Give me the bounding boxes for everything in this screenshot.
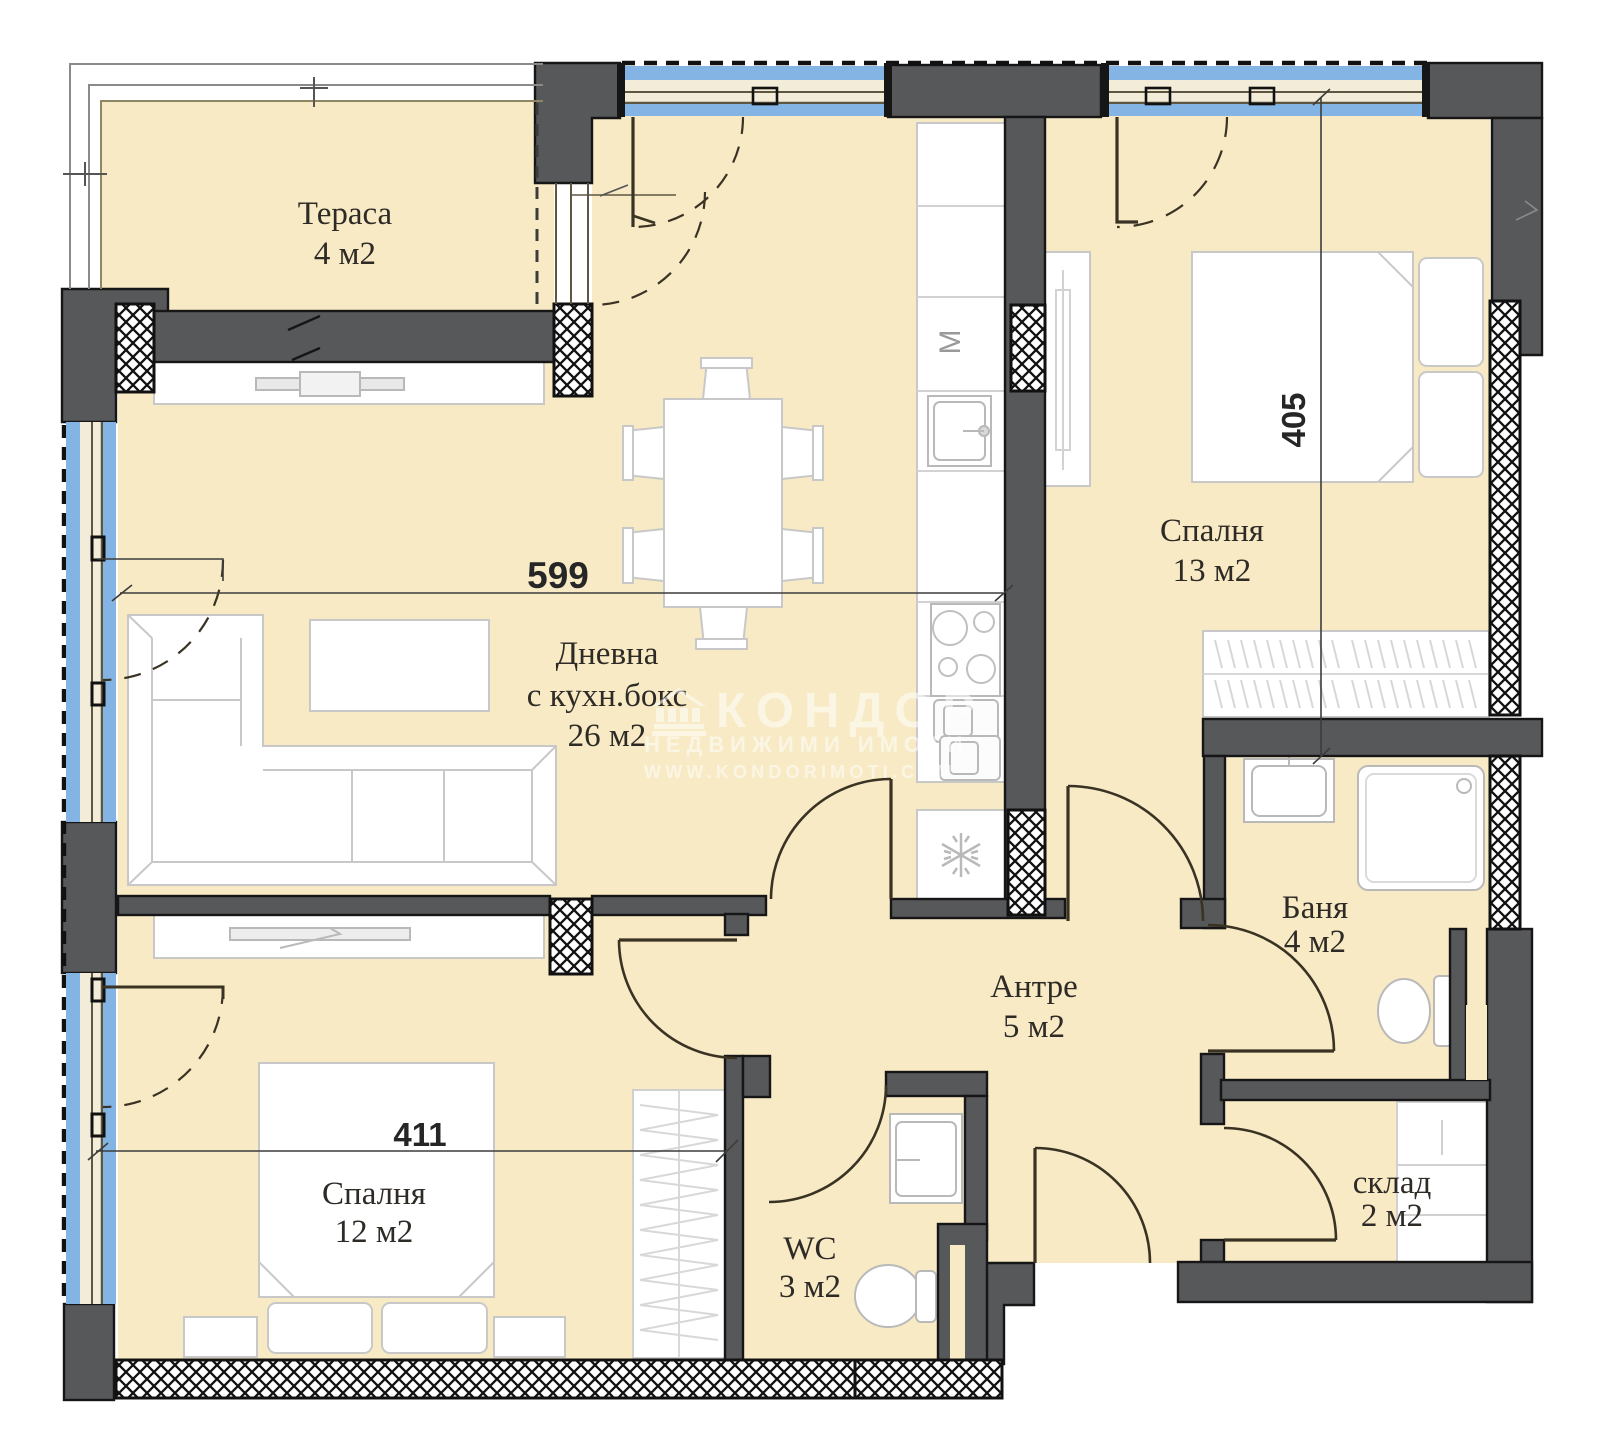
svg-text:Дневна: Дневна bbox=[556, 636, 659, 672]
svg-text:26 м2: 26 м2 bbox=[568, 718, 647, 754]
svg-text:5 м2: 5 м2 bbox=[1003, 1009, 1065, 1045]
svg-text:2 м2: 2 м2 bbox=[1361, 1198, 1423, 1234]
svg-text:12 м2: 12 м2 bbox=[335, 1214, 414, 1250]
svg-text:3 м2: 3 м2 bbox=[779, 1269, 841, 1305]
svg-text:Баня: Баня bbox=[1282, 890, 1348, 926]
svg-text:13 м2: 13 м2 bbox=[1173, 553, 1252, 589]
svg-text:НЕДВИЖИМИ ИМОТИ: НЕДВИЖИМИ ИМОТИ bbox=[644, 732, 968, 757]
svg-text:WWW.KONDORIMOTI.COM: WWW.KONDORIMOTI.COM bbox=[644, 762, 956, 782]
svg-text:Спалня: Спалня bbox=[1160, 513, 1264, 549]
svg-text:Тераса: Тераса bbox=[298, 196, 393, 232]
svg-text:КОНДОР: КОНДОР bbox=[716, 684, 985, 738]
svg-text:склад: склад bbox=[1353, 1165, 1432, 1201]
svg-text:M: M bbox=[934, 330, 967, 355]
svg-text:Антре: Антре bbox=[990, 969, 1077, 1005]
svg-text:WC: WC bbox=[783, 1231, 836, 1267]
svg-text:411: 411 bbox=[393, 1116, 446, 1153]
svg-text:4 м2: 4 м2 bbox=[314, 236, 376, 272]
svg-text:599: 599 bbox=[527, 555, 589, 596]
svg-text:Спалня: Спалня bbox=[322, 1176, 426, 1212]
svg-text:405: 405 bbox=[1275, 392, 1312, 447]
svg-text:4 м2: 4 м2 bbox=[1284, 924, 1346, 960]
